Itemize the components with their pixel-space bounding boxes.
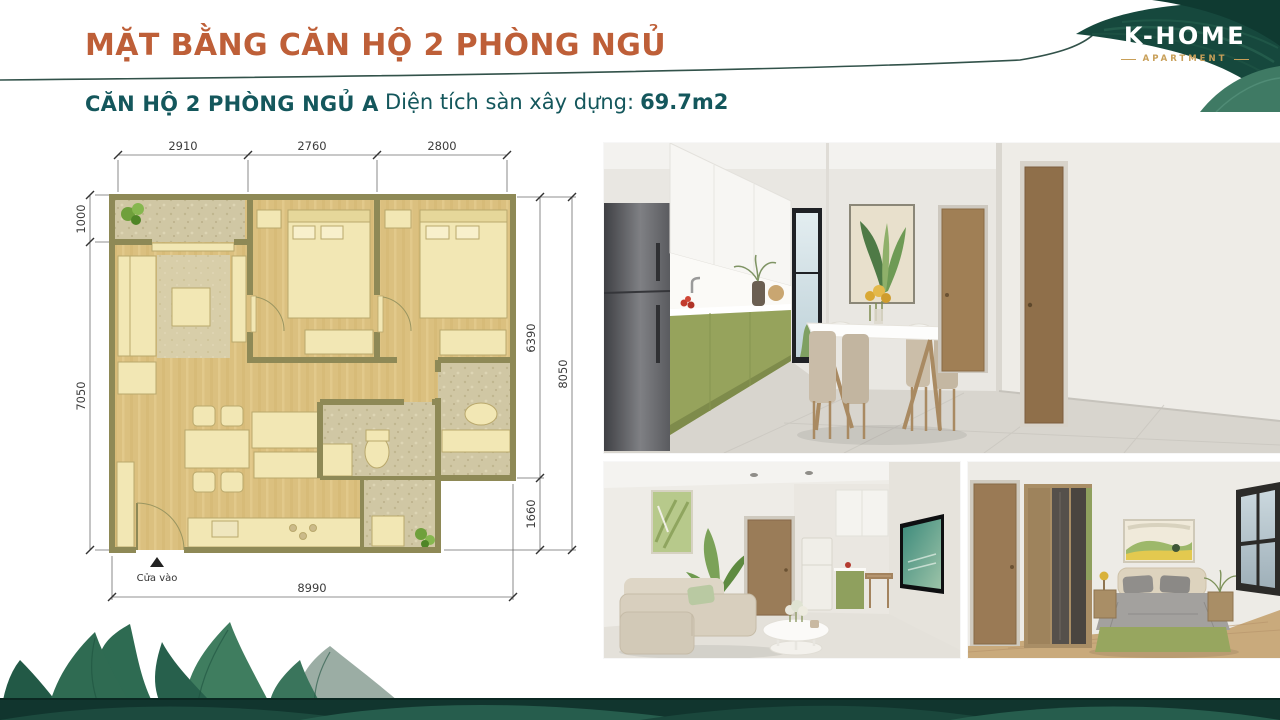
logo-dash-left [1121, 59, 1136, 60]
kitchen-sink [212, 521, 238, 537]
dining-chair [193, 406, 215, 426]
abstract-art [652, 491, 692, 553]
tv [900, 514, 944, 594]
dim-right-3: 8050 [556, 359, 570, 388]
bedroom-1-cabinet [305, 330, 373, 354]
bath-vanity [322, 444, 352, 476]
dim-bottom-1: 8990 [297, 581, 326, 595]
entrance-label: Cửa vào [137, 572, 178, 584]
armchair [118, 362, 156, 394]
kitchen-counter-2 [254, 452, 322, 478]
logo-subtitle: APARTMENT [1143, 54, 1228, 64]
sofa [118, 256, 156, 356]
landscape-art [1124, 520, 1194, 562]
bed-1-pillow [293, 226, 315, 239]
dining-table [185, 430, 249, 468]
bedroom-photo [968, 462, 1280, 658]
floor-area-line: Diện tích sàn xây dựng:69.7m2 [385, 90, 728, 114]
toilet-tank [366, 430, 389, 441]
kitchen-dining-photo [604, 143, 1280, 453]
nightstand [257, 210, 281, 228]
nightstand [385, 210, 411, 228]
bath-vanity-2 [442, 430, 510, 452]
dining-chair [221, 406, 243, 426]
logo-dash-right [1234, 59, 1249, 60]
dining-chair [221, 472, 243, 492]
tv-console [232, 256, 246, 342]
fridge-plan [117, 462, 134, 547]
logo: K-HOME APARTMENT [1096, 22, 1274, 64]
bed-2-pillow [456, 226, 479, 239]
living-room-photo [604, 462, 960, 658]
dim-left-1: 1000 [75, 204, 88, 233]
wardrobe [440, 330, 506, 355]
dim-top-1: 2910 [168, 139, 197, 153]
bedroom-window [1236, 482, 1280, 596]
bedroom-door [970, 480, 1020, 646]
toilet-2 [465, 403, 497, 425]
stove-burner [290, 525, 297, 532]
dim-top-3: 2800 [427, 139, 456, 153]
bed-1-pillow [321, 226, 343, 239]
kitchen-island [252, 412, 318, 448]
sliding-door [152, 243, 234, 251]
fridge [604, 203, 670, 451]
dim-left-2: 7050 [75, 381, 88, 410]
bed-2-pillow [426, 226, 449, 239]
floor-plan: 2910 2760 2800 1000 7050 6390 1660 8050 … [75, 135, 590, 615]
washer [372, 516, 404, 546]
coffee-table [172, 288, 210, 326]
stove-burner [310, 525, 317, 532]
bottom-leaf-strip [0, 698, 1280, 720]
bed-2-headboard [420, 210, 507, 222]
page-title: MẶT BẰNG CĂN HỘ 2 PHÒNG NGỦ [85, 28, 666, 63]
logo-brand: K-HOME [1096, 22, 1274, 50]
floor-area-label: Diện tích sàn xây dựng: [385, 90, 634, 114]
stove-burner [300, 533, 307, 540]
dim-right-1: 6390 [524, 323, 538, 352]
bed-1-headboard [288, 210, 370, 222]
entrance-marker: Cửa vào [137, 557, 178, 584]
dim-top-2: 2760 [297, 139, 326, 153]
slide: K-HOME APARTMENT MẶT BẰNG CĂN HỘ 2 PHÒNG… [0, 0, 1280, 720]
unit-type-label: CĂN HỘ 2 PHÒNG NGỦ A [85, 92, 379, 116]
wardrobe [1024, 484, 1092, 648]
dim-right-2: 1660 [524, 499, 538, 528]
floor-area-value: 69.7m2 [640, 90, 728, 114]
dining-chair [193, 472, 215, 492]
